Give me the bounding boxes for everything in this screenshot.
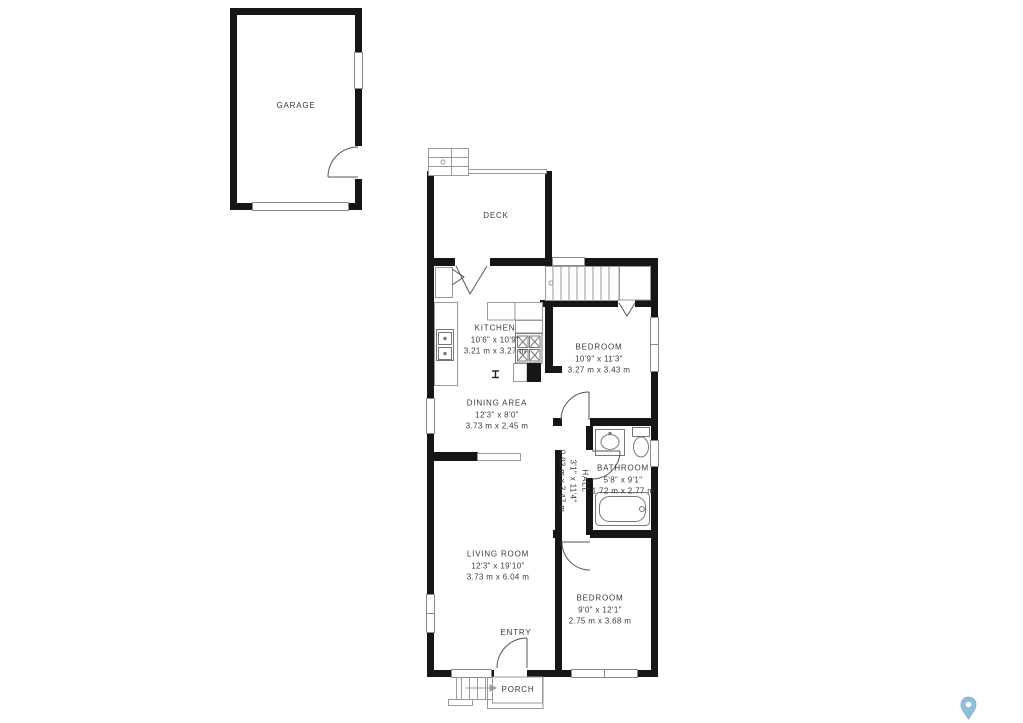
room-name: KITCHEN [464,323,527,335]
bifold-door [619,303,635,316]
steps-arrow [466,685,496,691]
room-dims-imperial: 9'0" x 12'1" [569,604,632,616]
floor-plan: GARAGE DECK KITCHEN 10'6" x 10'9" 3.21 m… [0,0,1023,723]
location-pin-icon [961,697,976,719]
room-name: DECK [483,210,508,222]
pantry [436,268,453,298]
toilet [633,428,650,458]
room-name: BEDROOM [569,593,632,605]
room-name: BATHROOM [592,463,655,475]
entry-door-swing [497,638,527,668]
room-label-dining-area: DINING AREA 12'3" x 8'0" 3.73 m x 2.45 m [466,398,529,433]
room-dims-metric: 2.75 m x 3.68 m [569,616,632,628]
room-dims-metric: 3.27 m x 3.43 m [568,365,631,377]
plan-details [0,0,1023,723]
room-label-living-room: LIVING ROOM 12'3" x 19'10" 3.73 m x 6.04… [467,549,530,584]
room-name: LIVING ROOM [467,549,530,561]
pantry-door [452,269,464,285]
room-name: HALL [579,450,591,513]
room-dims-imperial: 10'6" x 10'9" [464,334,527,346]
room-dims-metric: 3.21 m x 3.27 m [464,346,527,358]
room-dims-imperial: 5'8" x 9'1" [592,474,655,486]
room-dims-imperial: 3'1" x 11'4" [567,450,579,513]
room-dims-metric: 0.93 m x 3.47 m [556,450,568,513]
kitchen-sink [437,330,454,361]
room-label-deck: DECK [483,210,508,222]
room-name: ENTRY [501,627,532,639]
room-label-kitchen: KITCHEN 10'6" x 10'9" 3.21 m x 3.27 m [464,323,527,358]
bathtub [596,493,650,526]
room-name: DINING AREA [466,398,529,410]
room-name: GARAGE [276,100,315,112]
room-name: PORCH [502,684,535,696]
room-label-bathroom: BATHROOM 5'8" x 9'1" 1.72 m x 2.77 m [592,463,655,498]
room-dims-metric: 3.73 m x 6.04 m [467,572,530,584]
closet [620,267,651,301]
room-label-porch: PORCH [502,684,535,696]
room-dims-imperial: 12'3" x 19'10" [467,560,530,572]
room-label-bedroom-2: BEDROOM 9'0" x 12'1" 2.75 m x 3.68 m [569,593,632,628]
room-label-garage: GARAGE [276,100,315,112]
room-label-hall: HALL 3'1" x 11'4" 0.93 m x 3.47 m [556,450,591,513]
room-dims-imperial: 12'3" x 8'0" [466,409,529,421]
room-dims-metric: 1.72 m x 2.77 m [592,486,655,498]
bedroom1-door-swing [561,392,589,420]
column-marker [492,371,499,378]
room-label-entry: ENTRY [501,627,532,639]
room-dims-metric: 3.73 m x 2.45 m [466,421,529,433]
fridge [527,363,541,382]
room-dims-imperial: 10'9" x 11'3" [568,353,631,365]
back-door [456,266,487,294]
garage-door-swing [328,147,358,177]
bedroom2-door-swing [562,542,590,570]
staircase [546,267,620,301]
deck-step-lines [429,149,468,175]
room-label-bedroom-1: BEDROOM 10'9" x 11'3" 3.27 m x 3.43 m [568,342,631,377]
room-name: BEDROOM [568,342,631,354]
